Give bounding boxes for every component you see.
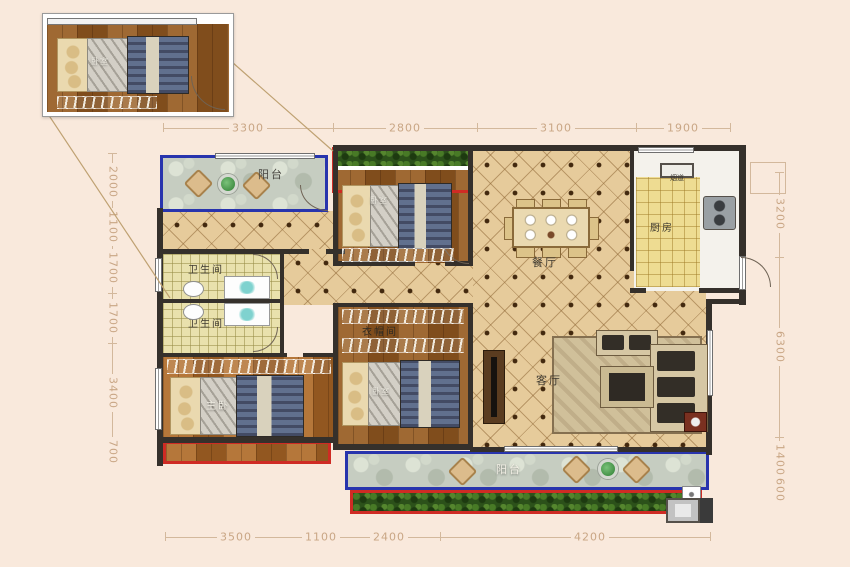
dim-top-4: 1900	[664, 122, 702, 135]
sliding-door-living-balcony	[504, 446, 618, 452]
dim-tick	[477, 123, 478, 132]
dining-table	[512, 207, 590, 248]
dim-tick	[108, 293, 117, 294]
dim-top-1: 3300	[229, 122, 267, 135]
window-kitchen	[638, 147, 694, 153]
dim-right-1: 3200	[774, 195, 787, 233]
dim-bottom-4: 4200	[571, 531, 609, 544]
tv-cabinet	[483, 350, 505, 424]
bed-quilt	[236, 375, 304, 437]
ac-bay-left	[163, 441, 331, 464]
bed-pillows	[57, 38, 89, 92]
window-bathroom	[155, 258, 162, 292]
inset-rack	[57, 96, 157, 109]
bed-quilt	[400, 360, 460, 428]
dim-right-3: 1400	[774, 441, 787, 479]
vanity-lower	[224, 303, 270, 326]
sink-basin	[237, 281, 257, 294]
dim-left-5: 3400	[107, 374, 120, 412]
loveseat	[596, 330, 658, 356]
kitchen-label: 厨房	[650, 219, 674, 234]
dining-chair	[568, 247, 587, 258]
balcony-plant	[598, 459, 618, 479]
balcony-plant	[218, 174, 238, 194]
dim-left-6: 700	[107, 437, 120, 467]
bed-pillows	[170, 377, 202, 435]
bed-top: 卧室	[342, 183, 450, 247]
toilet-lower	[183, 304, 204, 320]
window-balcony-top	[215, 153, 315, 159]
flue-label: 烟道	[670, 174, 684, 182]
wall-bedroom-top-left	[333, 151, 338, 265]
hall-floor	[163, 211, 345, 251]
inset-window	[47, 18, 197, 25]
dim-tick	[333, 123, 334, 132]
dim-left-2: 1100	[107, 208, 120, 246]
stove	[703, 196, 736, 230]
bed-pillows	[342, 185, 372, 247]
wardrobe-rack-master	[167, 359, 331, 374]
door-arc-entry	[741, 257, 771, 287]
bedroom-top-label: 卧室	[370, 195, 388, 206]
wall-bedroom-bottom-right	[468, 305, 473, 450]
bed-quilt	[398, 183, 452, 249]
inset-bed: 卧室	[57, 36, 187, 92]
dim-top-3: 3100	[537, 122, 575, 135]
wall-cloakroom-top	[333, 303, 473, 307]
dining-label: 餐厅	[532, 254, 558, 270]
sofa-cushion	[602, 335, 624, 350]
dim-left-1: 2000	[107, 163, 120, 201]
living-label: 客厅	[536, 372, 562, 388]
bathroom-upper-label: 卫生间	[188, 261, 224, 276]
sofa-cushion	[657, 377, 695, 397]
dim-tick	[710, 532, 711, 541]
wall-bedroom-bottom-left	[333, 305, 338, 450]
cloakroom-label: 衣帽间	[362, 323, 398, 338]
dim-left-3: 1700	[107, 249, 120, 287]
bed-bottom: 卧室	[342, 360, 458, 426]
balcony-top-label: 阳台	[258, 166, 284, 182]
coffee-table-top	[609, 373, 645, 401]
wall-bath-right	[280, 249, 284, 355]
dim-tick	[108, 343, 117, 344]
dim-bottom-3: 2400	[370, 531, 408, 544]
dim-right-2: 6300	[774, 328, 787, 366]
wall-bath-top-a	[157, 249, 309, 254]
dim-tick	[108, 153, 117, 154]
dim-tick	[165, 532, 166, 541]
dim-bottom-2: 1100	[302, 531, 340, 544]
coffee-table	[600, 366, 654, 408]
bed-master: 主卧	[170, 375, 302, 435]
dim-right-4: 600	[774, 475, 787, 505]
sofa-cushion	[629, 335, 651, 350]
inset-panel: 卧室	[42, 13, 234, 117]
wall-kitchen-bottom-a	[630, 288, 646, 293]
wall-kitchen-left	[630, 145, 634, 271]
bedroom-bottom-label: 卧室	[372, 386, 390, 397]
cloakroom-rack-upper	[342, 309, 464, 324]
equipment-block	[700, 498, 713, 523]
wall-bedroom-bottom	[333, 444, 473, 450]
dim-top-2: 2800	[386, 122, 424, 135]
toilet-upper	[183, 281, 204, 297]
vanity-upper	[224, 276, 270, 299]
wall-master-bottom	[157, 437, 335, 443]
hedge-bottom	[350, 490, 702, 514]
dim-tick	[775, 257, 784, 258]
dim-tick	[636, 123, 637, 132]
ac-platform-outline	[750, 162, 786, 194]
flue-box: 烟道	[660, 163, 694, 178]
wall-master-top-b	[303, 353, 335, 357]
dim-bottom-1: 3500	[217, 531, 255, 544]
bed-pillows	[342, 362, 370, 426]
master-bedroom-label: 主卧	[206, 397, 230, 412]
floor-plan-canvas: 卧室 主卧 衣帽间 卧室 卫生间 卫生间 烟道 厨房 餐厅	[0, 0, 850, 567]
wall-master-top-a	[157, 353, 287, 357]
inset-room-label: 卧室	[91, 56, 109, 67]
dim-tick	[440, 532, 441, 541]
balcony-bottom	[345, 451, 709, 490]
wall-right-step	[706, 299, 746, 304]
sofa-cushion	[657, 351, 695, 371]
tv-screen	[491, 357, 497, 417]
dim-tick	[775, 172, 784, 173]
side-table	[684, 412, 707, 432]
sink-basin	[237, 308, 257, 321]
wall-balcony-a	[470, 447, 504, 452]
wardrobe-rack-bedroom-top	[342, 248, 454, 262]
dim-left-4: 1700	[107, 299, 120, 337]
equipment-platform	[666, 498, 700, 523]
cloakroom-rack-lower	[342, 338, 464, 353]
wall-balcony-b	[618, 447, 710, 452]
balcony-bottom-label: 阳台	[496, 461, 522, 477]
dim-tick	[730, 123, 731, 132]
dim-tick	[163, 123, 164, 132]
dim-tick	[775, 437, 784, 438]
bed-quilt	[127, 36, 189, 94]
hedge-top	[335, 150, 469, 166]
window-master	[155, 368, 162, 430]
